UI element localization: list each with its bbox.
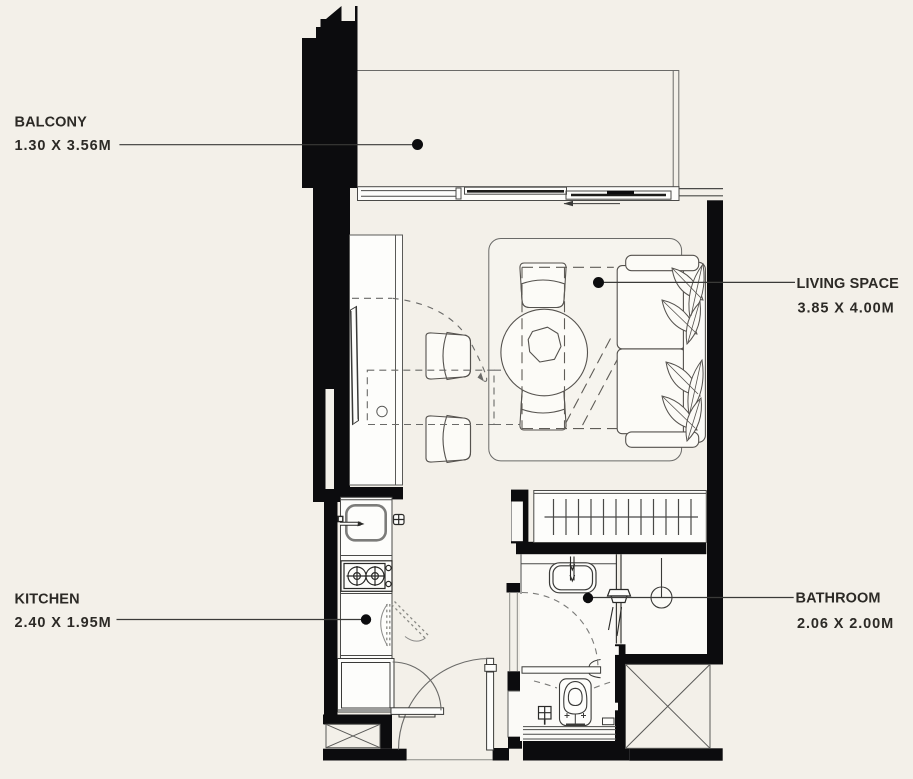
- svg-text:BATHROOM: BATHROOM: [796, 591, 881, 607]
- svg-text:BALCONY: BALCONY: [15, 115, 88, 131]
- svg-text:1.30 X 3.56M: 1.30 X 3.56M: [15, 138, 112, 154]
- svg-text:2.06 X 2.00M: 2.06 X 2.00M: [797, 616, 894, 632]
- svg-text:2.40 X 1.95M: 2.40 X 1.95M: [15, 615, 112, 631]
- svg-text:LIVING SPACE: LIVING SPACE: [797, 276, 900, 292]
- svg-text:KITCHEN: KITCHEN: [15, 592, 80, 608]
- svg-text:3.85 X 4.00M: 3.85 X 4.00M: [798, 300, 895, 316]
